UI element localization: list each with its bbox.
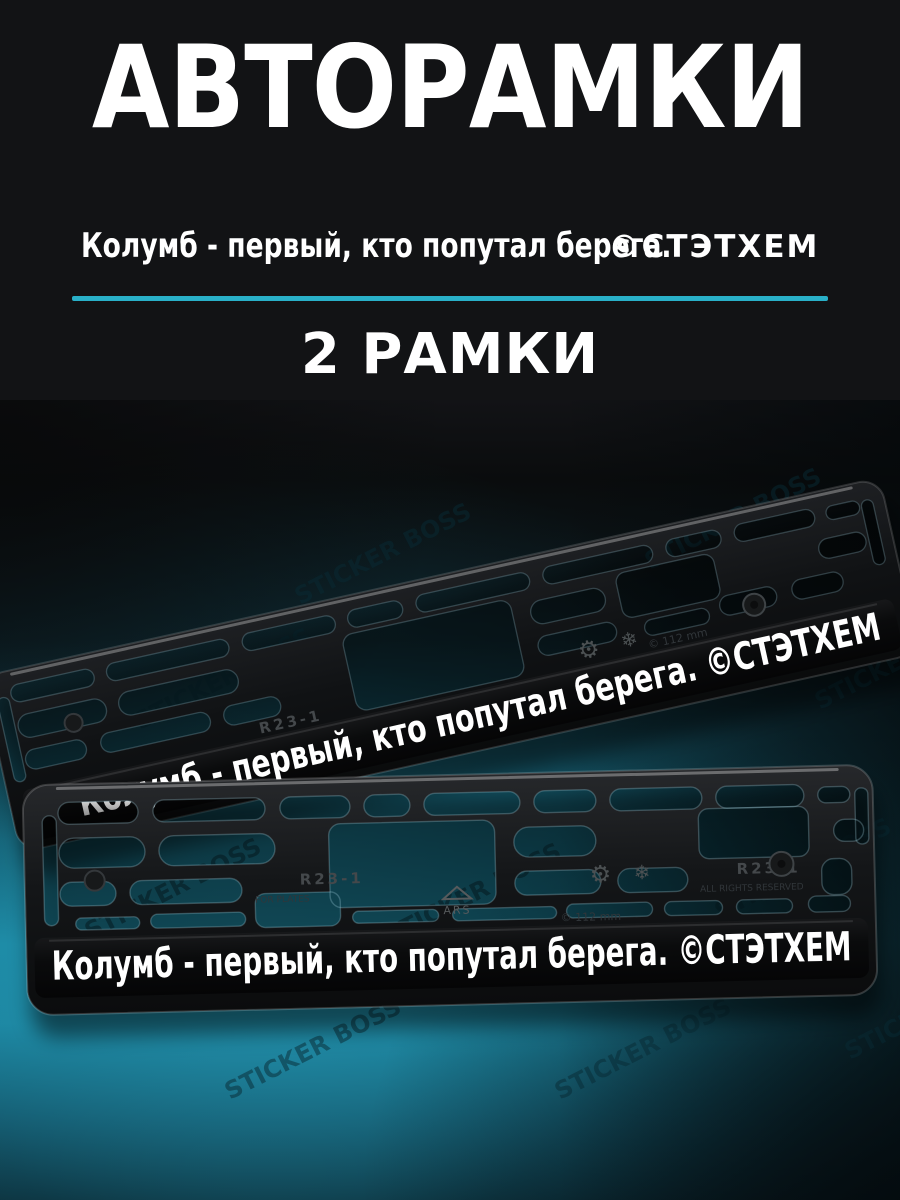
subtitle-row: Колумб - первый, кто попутал берега. ©СТ… [0, 226, 900, 266]
front-frame: ый, кто попутал бер Колумб - первый, кто… [22, 765, 877, 1016]
header: АВТОРАМКИ [0, 30, 900, 146]
page-title: АВТОРАМКИ [92, 30, 809, 146]
ars-logo-text: ARS [443, 903, 471, 917]
slogan-box: Колумб - первый, кто попутал берега. [81, 226, 581, 266]
size-note-emboss: © 112 mm [561, 910, 622, 924]
gear-icon: ⚙ [589, 860, 611, 889]
plates-emboss: FOR PLATES [255, 894, 310, 905]
model-emboss: R23-1 [299, 869, 364, 889]
bolt [84, 870, 104, 890]
quantity-label: 2 РАМКИ [0, 322, 900, 387]
divider-line [72, 296, 828, 301]
product-card: АВТОРАМКИ Колумб - первый, кто попутал б… [0, 0, 900, 1200]
snowflake-icon: ❄ [633, 860, 650, 884]
slogan-text: Колумб - первый, кто попутал берега. [81, 226, 671, 266]
product-photo: STICKER BOSS STICKER BOSS STICKER BOSS S… [0, 400, 900, 1200]
